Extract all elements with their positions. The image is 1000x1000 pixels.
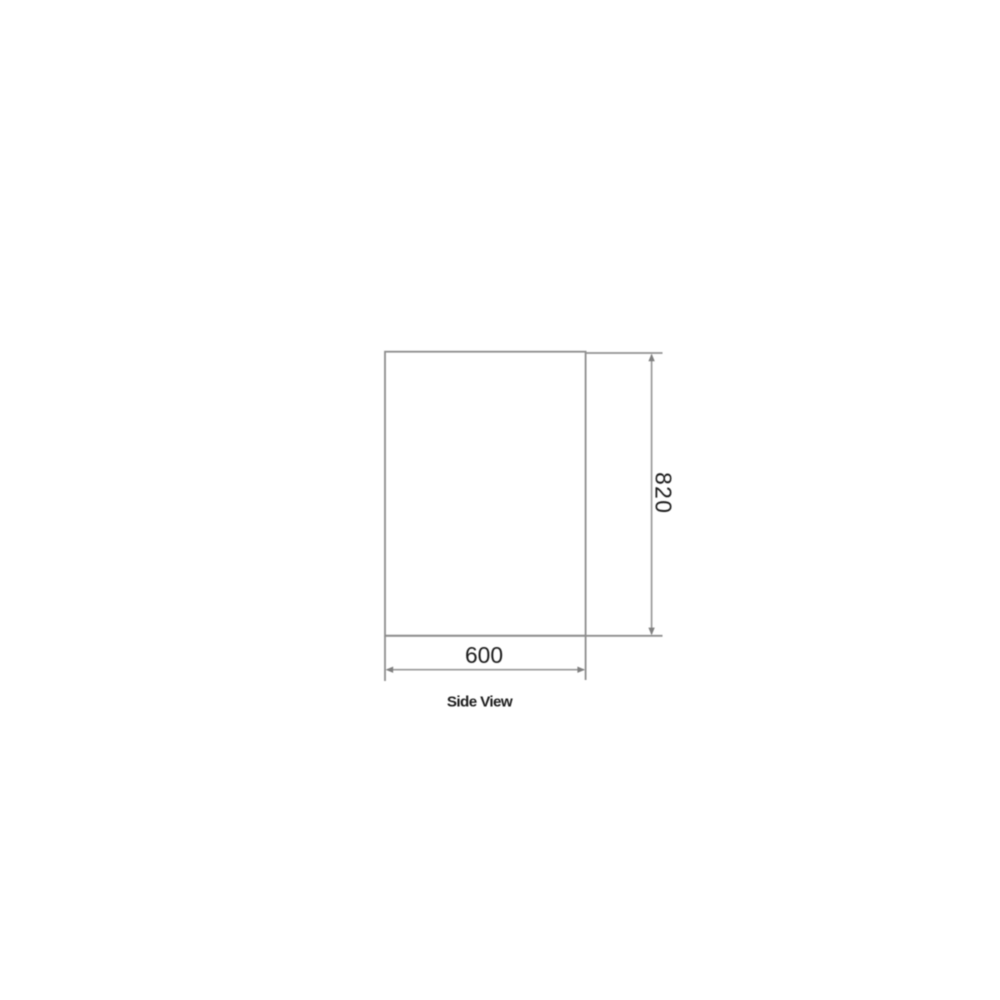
svg-text:Side View: Side View: [447, 694, 513, 711]
svg-text:600: 600: [465, 642, 503, 668]
svg-text:820: 820: [651, 472, 677, 514]
